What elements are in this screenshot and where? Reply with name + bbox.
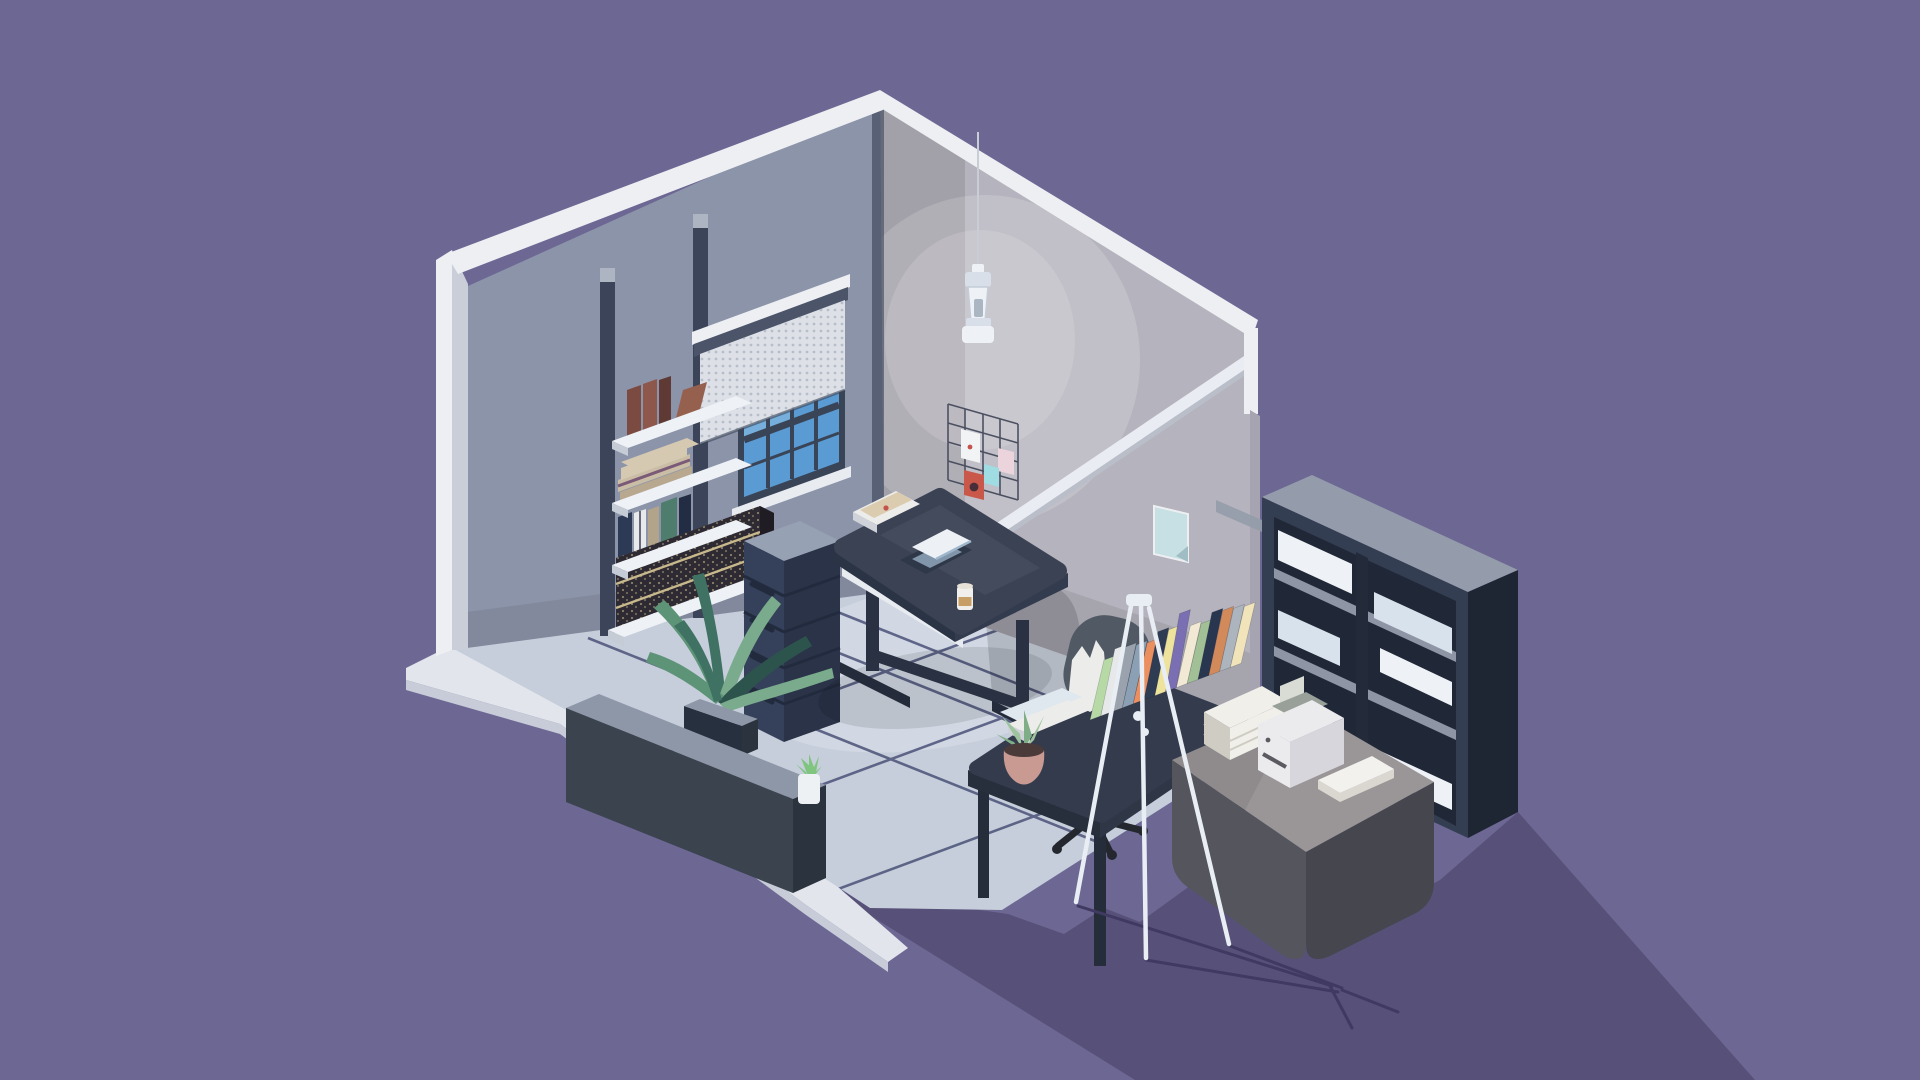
- scene-stage: Isometric low-poly home office in a cuta…: [0, 0, 1920, 1080]
- corner-post: [1244, 328, 1258, 414]
- memo-card-pink: [998, 448, 1014, 475]
- right-wall-edge: [1250, 410, 1260, 724]
- left-wall-outer-band: [436, 250, 452, 656]
- tripod-hub: [1141, 728, 1149, 736]
- glass-rim: [957, 583, 973, 589]
- latte-glass: [957, 583, 973, 610]
- wall-pillar-cap: [600, 268, 615, 282]
- plant-soil: [1004, 743, 1044, 757]
- tripod-head: [1126, 594, 1152, 606]
- pendant-base: [962, 326, 994, 343]
- printer-button: [1266, 738, 1271, 743]
- scene-svg: [0, 0, 1920, 1080]
- pot-body: [798, 774, 820, 804]
- bookcase-right-side: [1468, 570, 1518, 838]
- pendant-knob: [972, 264, 984, 273]
- poster: [1154, 506, 1188, 562]
- memo-card-red-dot: [968, 445, 973, 450]
- left-wall-inner-band: [452, 250, 468, 650]
- book-spine: [659, 376, 671, 428]
- wall-pillar: [600, 280, 615, 636]
- side-desk-leg: [1094, 830, 1106, 966]
- memo-card-circle: [970, 483, 979, 492]
- tripod-hub: [1133, 711, 1143, 721]
- side-desk-leg: [978, 784, 989, 898]
- paper-red-mark: [883, 505, 888, 510]
- memo-card-cyan: [984, 464, 999, 487]
- pendant-core: [974, 299, 983, 317]
- wall-pillar-cap: [693, 214, 708, 228]
- pendant-cap: [965, 272, 991, 287]
- glass-coffee: [959, 597, 972, 606]
